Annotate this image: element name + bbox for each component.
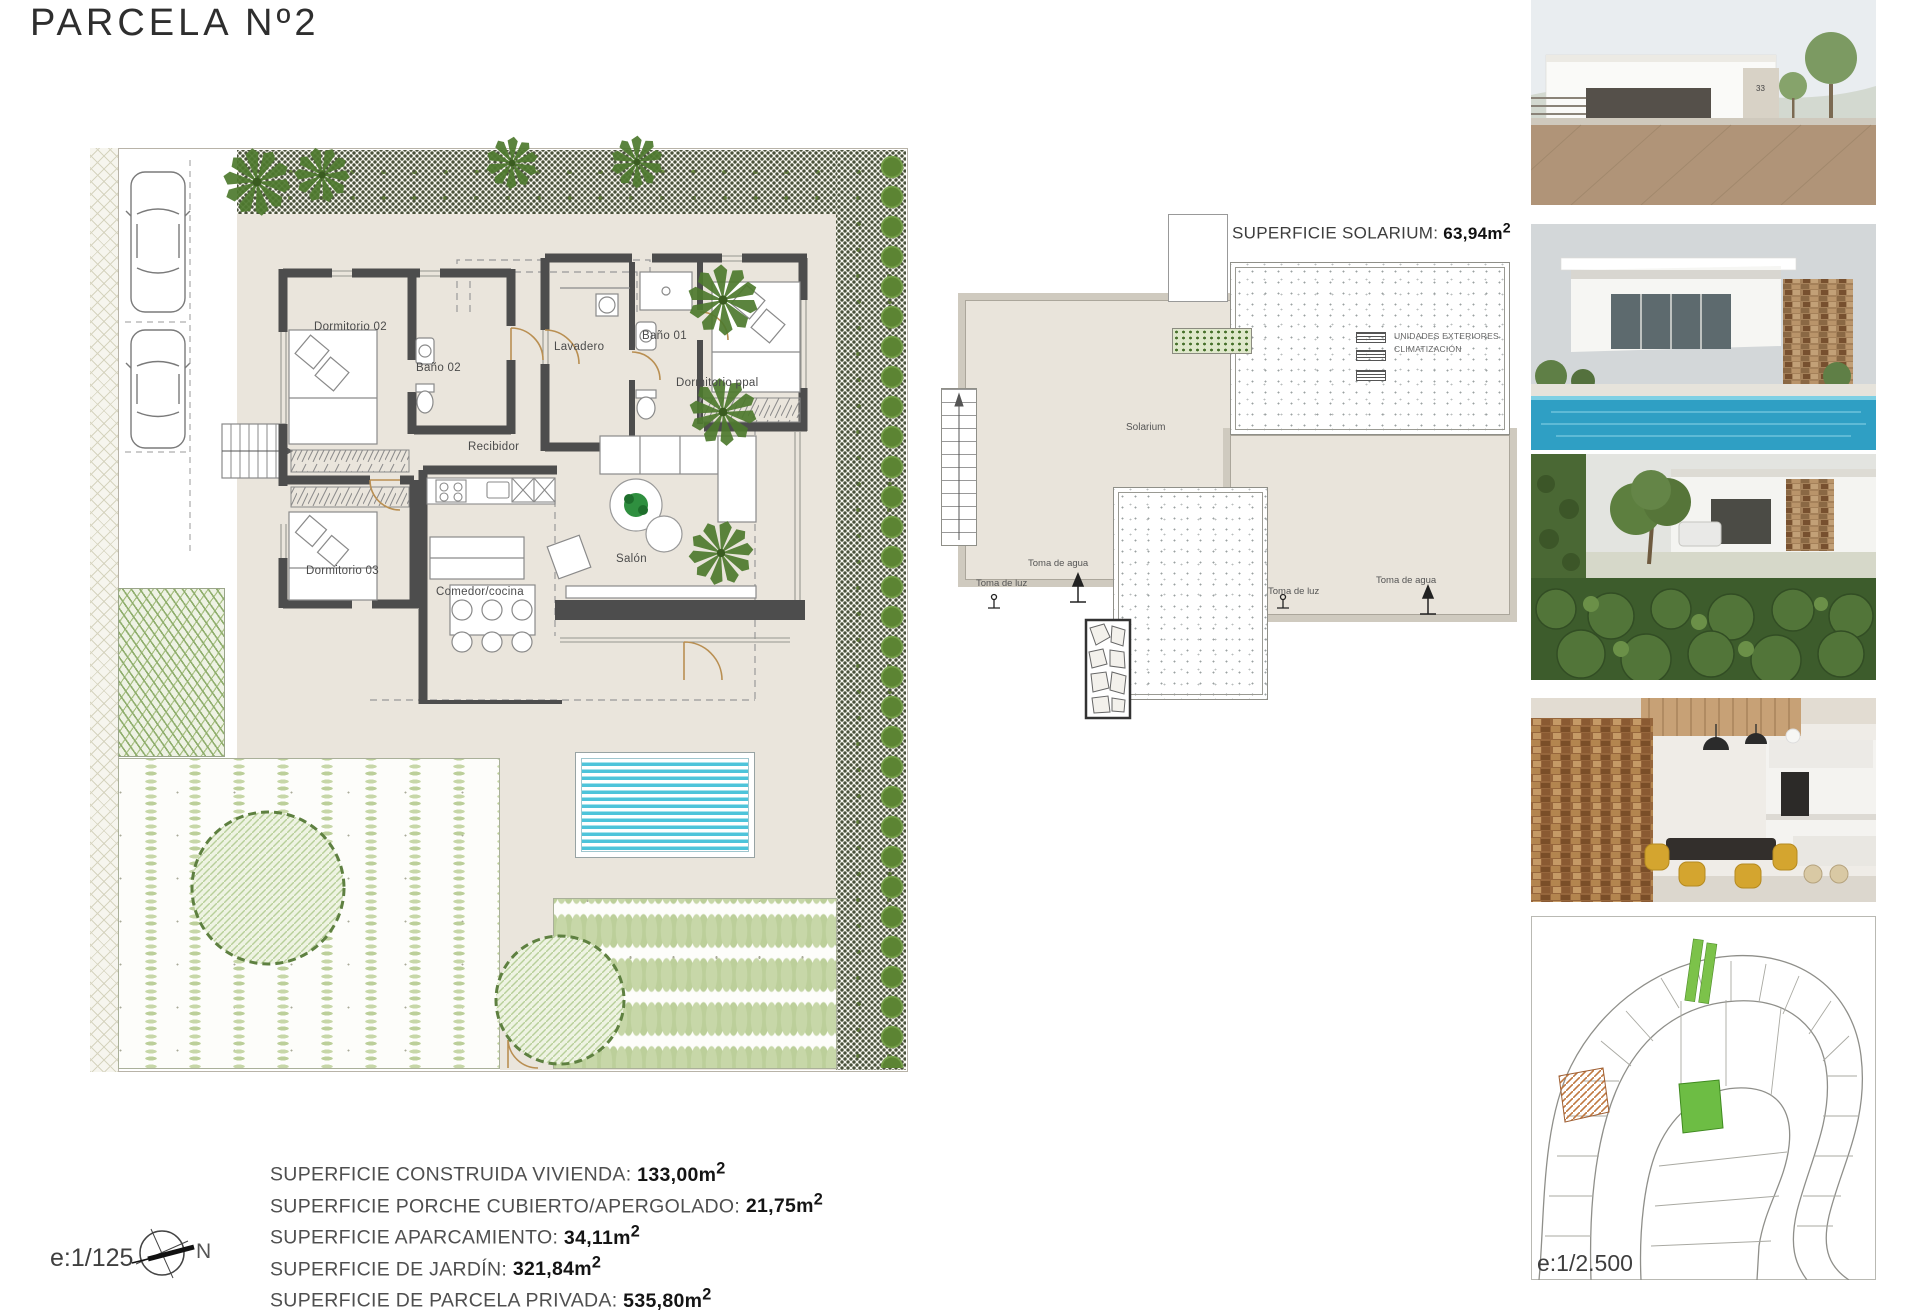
room-label-lavadero: Lavadero bbox=[554, 341, 604, 353]
room-label-bano01: Baño 01 bbox=[642, 330, 687, 342]
ground-cover-patch bbox=[118, 588, 225, 757]
room-label-salon: Salón bbox=[616, 553, 647, 565]
ac-unit-3 bbox=[1356, 370, 1386, 381]
toma-luz-label-1: Toma de luz bbox=[976, 578, 1027, 589]
room-label-dormitorio-ppal: Dormitorio ppal bbox=[676, 377, 758, 389]
plan-scale: e:1/125 bbox=[50, 1244, 133, 1273]
solarium-title-label: SUPERFICIE SOLARIUM: bbox=[1232, 224, 1443, 243]
plan-sheet: PARCELA Nº2 bbox=[0, 0, 1920, 1280]
solarium-room-label: Solarium bbox=[1126, 422, 1165, 433]
garden-rows-south bbox=[553, 898, 837, 1069]
photo-villa-interior-render bbox=[1531, 698, 1876, 902]
solarium-title-value: 63,94m bbox=[1443, 224, 1502, 243]
ac-unit-2 bbox=[1356, 350, 1386, 361]
ac-label-line1: UNIDADES EXTERIORES bbox=[1394, 331, 1499, 341]
room-label-dormitorio03: Dormitorio 03 bbox=[306, 565, 379, 577]
summary-row-parcela: SUPERFICIE DE PARCELA PRIVADA: 535,80m2 bbox=[270, 1282, 823, 1314]
garden-strip-top bbox=[237, 150, 836, 214]
toma-luz-label-2: Toma de luz bbox=[1268, 586, 1319, 597]
solarium-gravel-ne bbox=[1230, 262, 1510, 435]
swimming-pool bbox=[575, 752, 755, 858]
summary-row-jardin: SUPERFICIE DE JARDÍN: 321,84m2 bbox=[270, 1251, 823, 1283]
summary-row-vivienda: SUPERFICIE CONSTRUIDA VIVIENDA: 133,00m2 bbox=[270, 1156, 823, 1188]
garden-rows-west bbox=[118, 758, 500, 1069]
surface-summary: SUPERFICIE CONSTRUIDA VIVIENDA: 133,00m2… bbox=[270, 1156, 823, 1314]
map-scale: e:1/2.500 bbox=[1537, 1250, 1633, 1277]
summary-row-aparcamiento: SUPERFICIE APARCAMIENTO: 34,11m2 bbox=[270, 1219, 823, 1251]
solarium-gravel-mid bbox=[1113, 487, 1268, 700]
room-label-comedor-cocina: Comedor/cocina bbox=[436, 586, 524, 598]
room-label-recibidor: Recibidor bbox=[468, 441, 519, 453]
house-number-plate: 33 bbox=[1756, 84, 1765, 93]
site-location-map bbox=[1531, 916, 1876, 1280]
photo-villa-street-view bbox=[1531, 0, 1876, 205]
terrace-area bbox=[237, 214, 837, 760]
summary-row-porche: SUPERFICIE PORCHE CUBIERTO/APERGOLADO: 2… bbox=[270, 1188, 823, 1220]
sq-exponent: 2 bbox=[1503, 220, 1511, 236]
boundary-hatch-strip bbox=[90, 148, 118, 1072]
ac-unit-1 bbox=[1356, 332, 1386, 343]
toma-agua-label-1: Toma de agua bbox=[1028, 558, 1088, 569]
ac-label-line2: CLIMATIZACIÓN bbox=[1394, 344, 1462, 354]
photo-villa-garden-render bbox=[1531, 454, 1876, 680]
hedge-bush-column bbox=[877, 152, 907, 1068]
solarium-title: SUPERFICIE SOLARIUM: 63,94m2 bbox=[1232, 220, 1511, 244]
stair-bulkhead bbox=[1168, 214, 1228, 302]
pool-water bbox=[581, 758, 749, 852]
solarium-planter bbox=[1172, 328, 1252, 354]
solarium-stairs bbox=[941, 388, 977, 546]
compass-north-label: N bbox=[196, 1240, 211, 1264]
photo-villa-pool-render bbox=[1531, 224, 1876, 450]
room-label-dormitorio02: Dormitorio 02 bbox=[314, 321, 387, 333]
toma-agua-label-2: Toma de agua bbox=[1376, 575, 1436, 586]
page-title: PARCELA Nº2 bbox=[30, 2, 320, 45]
room-label-bano02: Baño 02 bbox=[416, 362, 461, 374]
compass-icon bbox=[132, 1229, 194, 1278]
